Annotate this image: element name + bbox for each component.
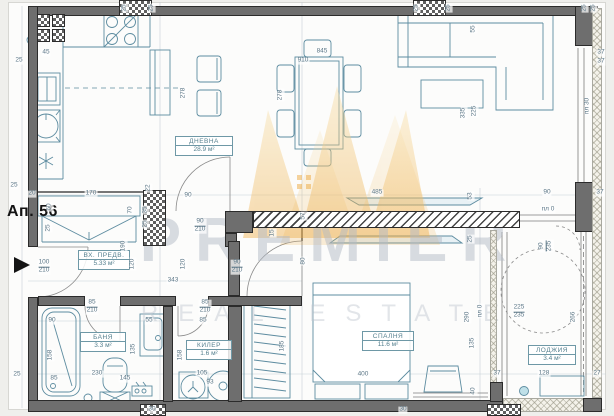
dimension-label: 20	[27, 191, 36, 198]
dimension-label: пл 0	[478, 304, 485, 319]
dimension-label: 845	[316, 49, 329, 56]
dimension-label: 25	[46, 223, 53, 232]
dimension-label: 128	[538, 371, 551, 378]
dimension-label: 85	[198, 318, 207, 325]
dimension-label: 57	[301, 211, 308, 220]
dimension-label: 266	[571, 311, 578, 324]
wall-corridor-south	[208, 296, 302, 306]
dimension-label: пл 30	[585, 97, 592, 115]
dimension-label: 25	[591, 3, 598, 12]
dimension-label: 25	[149, 3, 156, 12]
dimension-label: 343	[167, 278, 180, 285]
dimension-label: 230	[91, 371, 104, 378]
wall-bottom	[28, 400, 503, 412]
dimension-label: 120	[130, 258, 137, 271]
dimension-label: 90	[47, 318, 56, 325]
stove	[104, 13, 138, 47]
dimension-label: 37	[595, 190, 604, 197]
wall-bottom-right-corner	[583, 398, 602, 412]
dimension-label: 25	[446, 3, 453, 12]
room-label-loggia: ЛОДЖИЯ3.4 м²	[528, 345, 576, 365]
room-label-living: ДНЕВНА28.9 м²	[175, 136, 233, 156]
dining-chairs	[277, 40, 361, 166]
column	[143, 190, 166, 246]
dimension-label: 85210	[86, 300, 99, 315]
dimension-label: 185	[280, 340, 287, 353]
room-area: 5.33 м²	[79, 260, 129, 268]
room-name: БАНЯ	[81, 333, 125, 342]
bedroom-door	[247, 241, 302, 296]
tv-bedroom	[330, 236, 462, 243]
dimension-label: 25	[143, 219, 150, 228]
dimension-label: 35	[143, 205, 150, 214]
dimension-label: 910	[297, 58, 310, 65]
dimension-label: 60	[47, 202, 54, 211]
room-label-bathroom: БАНЯ3.3 м²	[80, 332, 126, 352]
dimension-label: 90210	[231, 260, 244, 275]
wall-right-insulation	[592, 8, 602, 398]
dimension-label: 25	[414, 3, 421, 12]
dimension-label: 158	[48, 349, 55, 362]
dimension-label: 22	[146, 183, 153, 192]
room-name: ЛОДЖИЯ	[529, 346, 575, 355]
dimension-label: 37	[596, 59, 605, 66]
bar-chairs	[197, 56, 221, 116]
dimension-label: 25	[122, 3, 129, 12]
partition-wall-hatched	[253, 211, 520, 228]
dimension-label: 135	[470, 337, 477, 350]
wall-bath-closet-divider	[163, 306, 173, 402]
dimension-label: 15	[270, 228, 277, 237]
dimension-label: 225	[472, 105, 479, 118]
dimension-label: 30	[147, 407, 156, 414]
dimension-label: 80	[301, 256, 308, 265]
dimension-label: 25	[12, 372, 21, 379]
dimension-label: 135	[131, 343, 138, 356]
dimension-label: 90235	[539, 240, 554, 253]
wall-left-lower	[28, 297, 38, 402]
kitchen-cabinet-2	[52, 14, 65, 27]
dimension-label: 55	[144, 318, 153, 325]
room-name: КИЛЕР	[187, 341, 231, 350]
dimension-label: 170	[85, 191, 98, 198]
dimension-label: 40	[471, 386, 478, 395]
dimension-label: 190	[121, 240, 128, 253]
dimension-label: пл 0	[541, 207, 556, 214]
floor-plan-canvas: PREMIER REAL ESTATE Ап. 56 ДНЕВНА28.9 м²…	[0, 0, 614, 416]
dimension-label: 90210	[194, 219, 207, 234]
room-area: 11.6 м²	[363, 341, 413, 349]
room-area: 28.9 м²	[176, 146, 232, 154]
door-jamb-block	[225, 211, 253, 233]
room-label-bedroom: СПАЛНЯ11.6 м²	[362, 331, 414, 351]
living-room-door	[176, 157, 230, 211]
loggia-bench	[520, 376, 585, 396]
kitchen-cabinet-1	[37, 14, 50, 27]
dimension-label: 55	[471, 24, 478, 33]
room-label-closet: КИЛЕР1.6 м²	[186, 340, 232, 360]
dimension-label: 93	[205, 380, 214, 387]
dimension-label: 30	[398, 407, 407, 414]
wall-bath-top-right	[120, 296, 176, 306]
dimension-label: 278	[278, 89, 285, 102]
dimension-label: 400	[357, 372, 370, 379]
dressers	[315, 384, 408, 399]
dimension-label: 90	[183, 193, 192, 200]
dimension-label: 45	[41, 50, 50, 57]
room-area: 1.6 м²	[187, 350, 231, 358]
bedroom-chair	[424, 366, 462, 392]
dimension-label: 25	[14, 58, 23, 65]
dimension-label: 485	[371, 190, 384, 197]
dimension-label: 158	[178, 349, 185, 362]
dimension-label: 53	[468, 191, 475, 200]
wall-pier-bedroom-se	[490, 382, 503, 402]
kitchen-cabinet-4	[52, 29, 65, 42]
room-name: ДНЕВНА	[176, 137, 232, 146]
light-symbol	[39, 153, 53, 169]
kitchen-cabinet-3	[37, 29, 50, 42]
dimension-label: 290	[465, 311, 472, 324]
dimension-label: 225235	[513, 305, 526, 320]
dimension-label: 85	[49, 376, 58, 383]
dimension-label: 100210	[38, 260, 51, 275]
wall-top	[28, 6, 585, 16]
room-name: СПАЛНЯ	[363, 332, 413, 341]
dimension-label: 145	[119, 376, 132, 383]
dimension-label: 25	[9, 183, 18, 190]
dimension-label: 120	[181, 258, 188, 271]
dimension-label: 90	[542, 190, 551, 197]
dimension-label: 85210	[199, 300, 212, 315]
dimension-label: 25	[582, 3, 589, 12]
dimension-label: 70	[128, 205, 135, 214]
room-area: 3.4 м²	[529, 355, 575, 363]
dimension-label: 27	[592, 371, 601, 378]
wall-bath-top-left	[38, 296, 85, 306]
dimension-label: 105	[196, 371, 209, 378]
dimension-label: 25	[468, 234, 475, 243]
dimension-label: 278	[181, 87, 188, 100]
shaft-bottom-2	[487, 404, 521, 416]
room-label-entry: ВХ. ПРЕДВ.5.33 м²	[78, 250, 130, 270]
dimension-label: 37	[492, 371, 501, 378]
tv-living	[347, 198, 482, 205]
room-area: 3.3 м²	[81, 342, 125, 350]
dimension-label: 335	[461, 107, 468, 120]
dimension-label: 37	[596, 50, 605, 57]
